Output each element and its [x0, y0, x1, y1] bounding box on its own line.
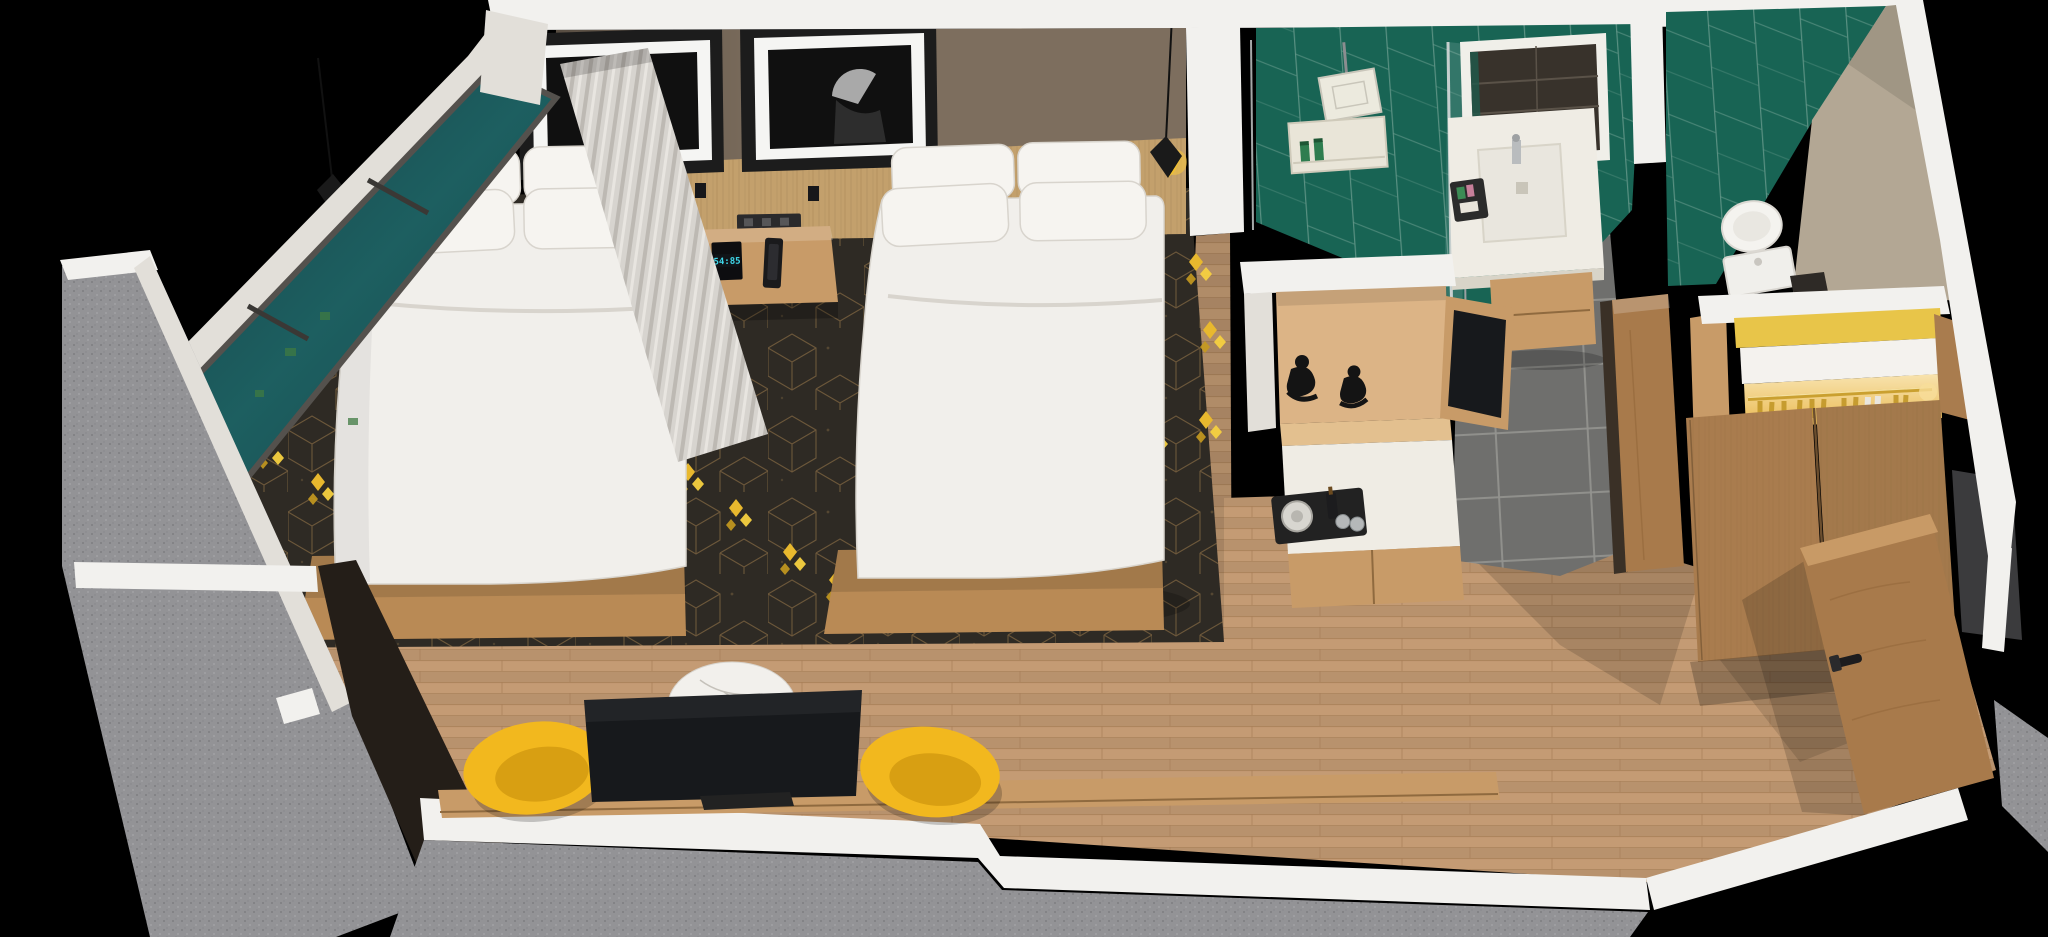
closet-light-glow [1919, 383, 1937, 401]
side-screen [1448, 310, 1506, 418]
divider-wall-cap [1186, 26, 1244, 236]
reading-sconce-right [808, 186, 819, 201]
sink-drain [1516, 182, 1528, 194]
amenity-tray [1450, 178, 1489, 222]
toiletry-bottle [1300, 144, 1310, 162]
shower-niche [1288, 117, 1387, 174]
room-render: 54:85 [0, 0, 2048, 937]
clock-display: 54:85 [713, 257, 740, 268]
reading-sconce-left [695, 183, 706, 198]
west-wall-end-cap [480, 10, 548, 105]
phone-dock [763, 238, 784, 289]
toiletry-bottle [1314, 141, 1324, 161]
faucet [1512, 140, 1521, 164]
bar-cabinet [1288, 546, 1464, 608]
tv [584, 690, 862, 810]
bed-2 [824, 141, 1190, 634]
